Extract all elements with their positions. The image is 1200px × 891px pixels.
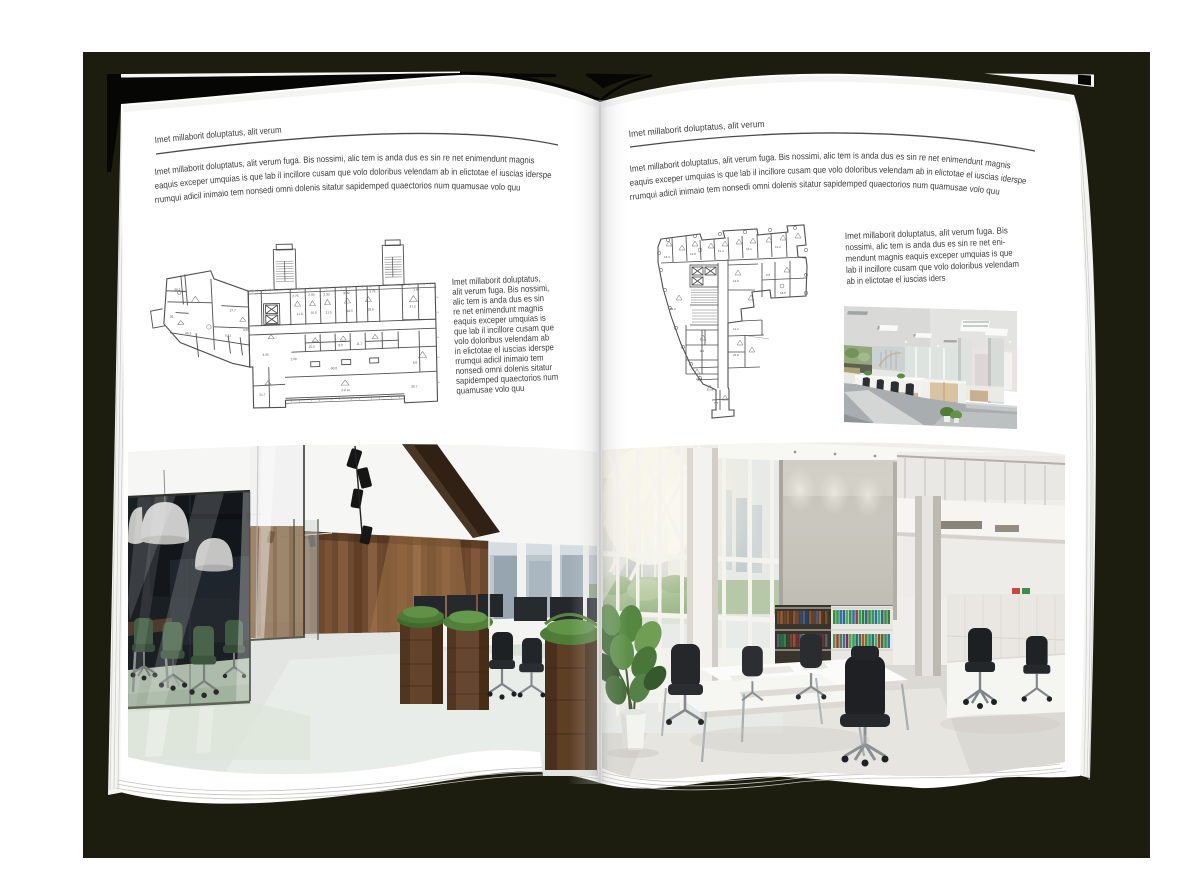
svg-text:90.8: 90.8	[331, 366, 338, 370]
svg-text:37.2: 37.2	[409, 305, 416, 309]
svg-text:24.8: 24.8	[733, 353, 739, 357]
svg-text:18.5: 18.5	[347, 309, 354, 313]
svg-text:4.45: 4.45	[262, 353, 269, 357]
svg-text:13.1: 13.1	[746, 247, 752, 251]
svg-text:21.7: 21.7	[259, 393, 266, 397]
svg-text:12.4: 12.4	[696, 377, 702, 381]
svg-text:10.6: 10.6	[311, 311, 318, 315]
svg-text:3.78: 3.78	[369, 289, 376, 293]
svg-text:14.6: 14.6	[733, 279, 739, 283]
svg-text:2.56: 2.56	[291, 357, 298, 361]
svg-text:28.6: 28.6	[368, 307, 375, 311]
svg-text:2.30: 2.30	[323, 292, 330, 296]
svg-text:16.3: 16.3	[664, 255, 670, 259]
svg-text:10.9: 10.9	[308, 345, 315, 349]
svg-text:11.8: 11.8	[297, 312, 303, 316]
svg-text:1.45: 1.45	[413, 287, 420, 291]
svg-text:3.00: 3.00	[343, 291, 350, 295]
svg-text:28: 28	[170, 315, 174, 319]
svg-text:11.7: 11.7	[356, 342, 362, 346]
svg-text:11.4: 11.4	[718, 249, 724, 253]
svg-text:18.5: 18.5	[780, 291, 786, 295]
svg-text:5.11: 5.11	[225, 333, 231, 337]
svg-text:2.75: 2.75	[292, 294, 299, 298]
svg-text:9.8: 9.8	[766, 273, 771, 277]
svg-text:2.80: 2.80	[308, 293, 315, 297]
svg-text:8.8: 8.8	[413, 361, 418, 365]
svg-text:8.4: 8.4	[700, 349, 705, 353]
svg-text:8.8: 8.8	[338, 343, 343, 347]
svg-text:37.7: 37.7	[230, 308, 237, 312]
svg-text:56.2: 56.2	[670, 307, 676, 311]
svg-text:12.2: 12.2	[775, 245, 781, 249]
svg-text:7.7: 7.7	[714, 401, 719, 405]
svg-text:11.2: 11.2	[733, 327, 739, 331]
svg-text:12.8: 12.8	[690, 252, 696, 256]
svg-text:39.2: 39.2	[174, 287, 181, 291]
svg-text:11.5: 11.5	[326, 310, 332, 314]
svg-text:38.7: 38.7	[411, 385, 418, 389]
svg-text:2-й эт: 2-й эт	[341, 388, 350, 392]
svg-text:4.63: 4.63	[243, 328, 250, 332]
svg-text:40.2: 40.2	[185, 331, 192, 335]
